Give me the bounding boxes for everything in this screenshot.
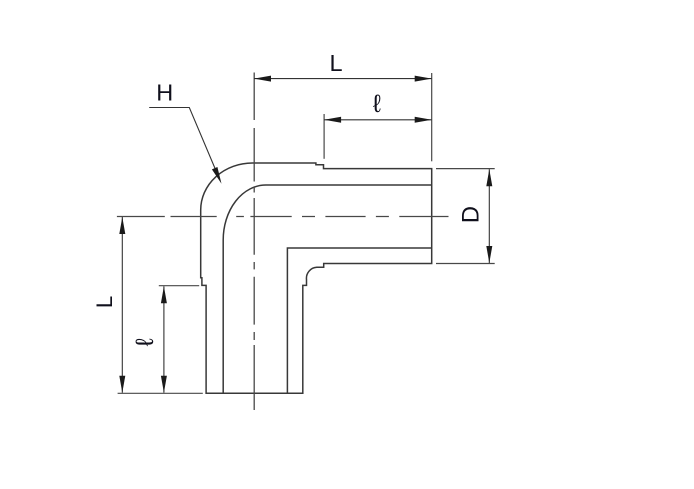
svg-text:ℓ: ℓ — [373, 90, 382, 118]
svg-text:L: L — [329, 50, 342, 76]
svg-text:H: H — [156, 80, 173, 106]
svg-text:D: D — [458, 206, 485, 223]
svg-text:L: L — [92, 296, 117, 309]
svg-text:ℓ: ℓ — [131, 338, 159, 347]
